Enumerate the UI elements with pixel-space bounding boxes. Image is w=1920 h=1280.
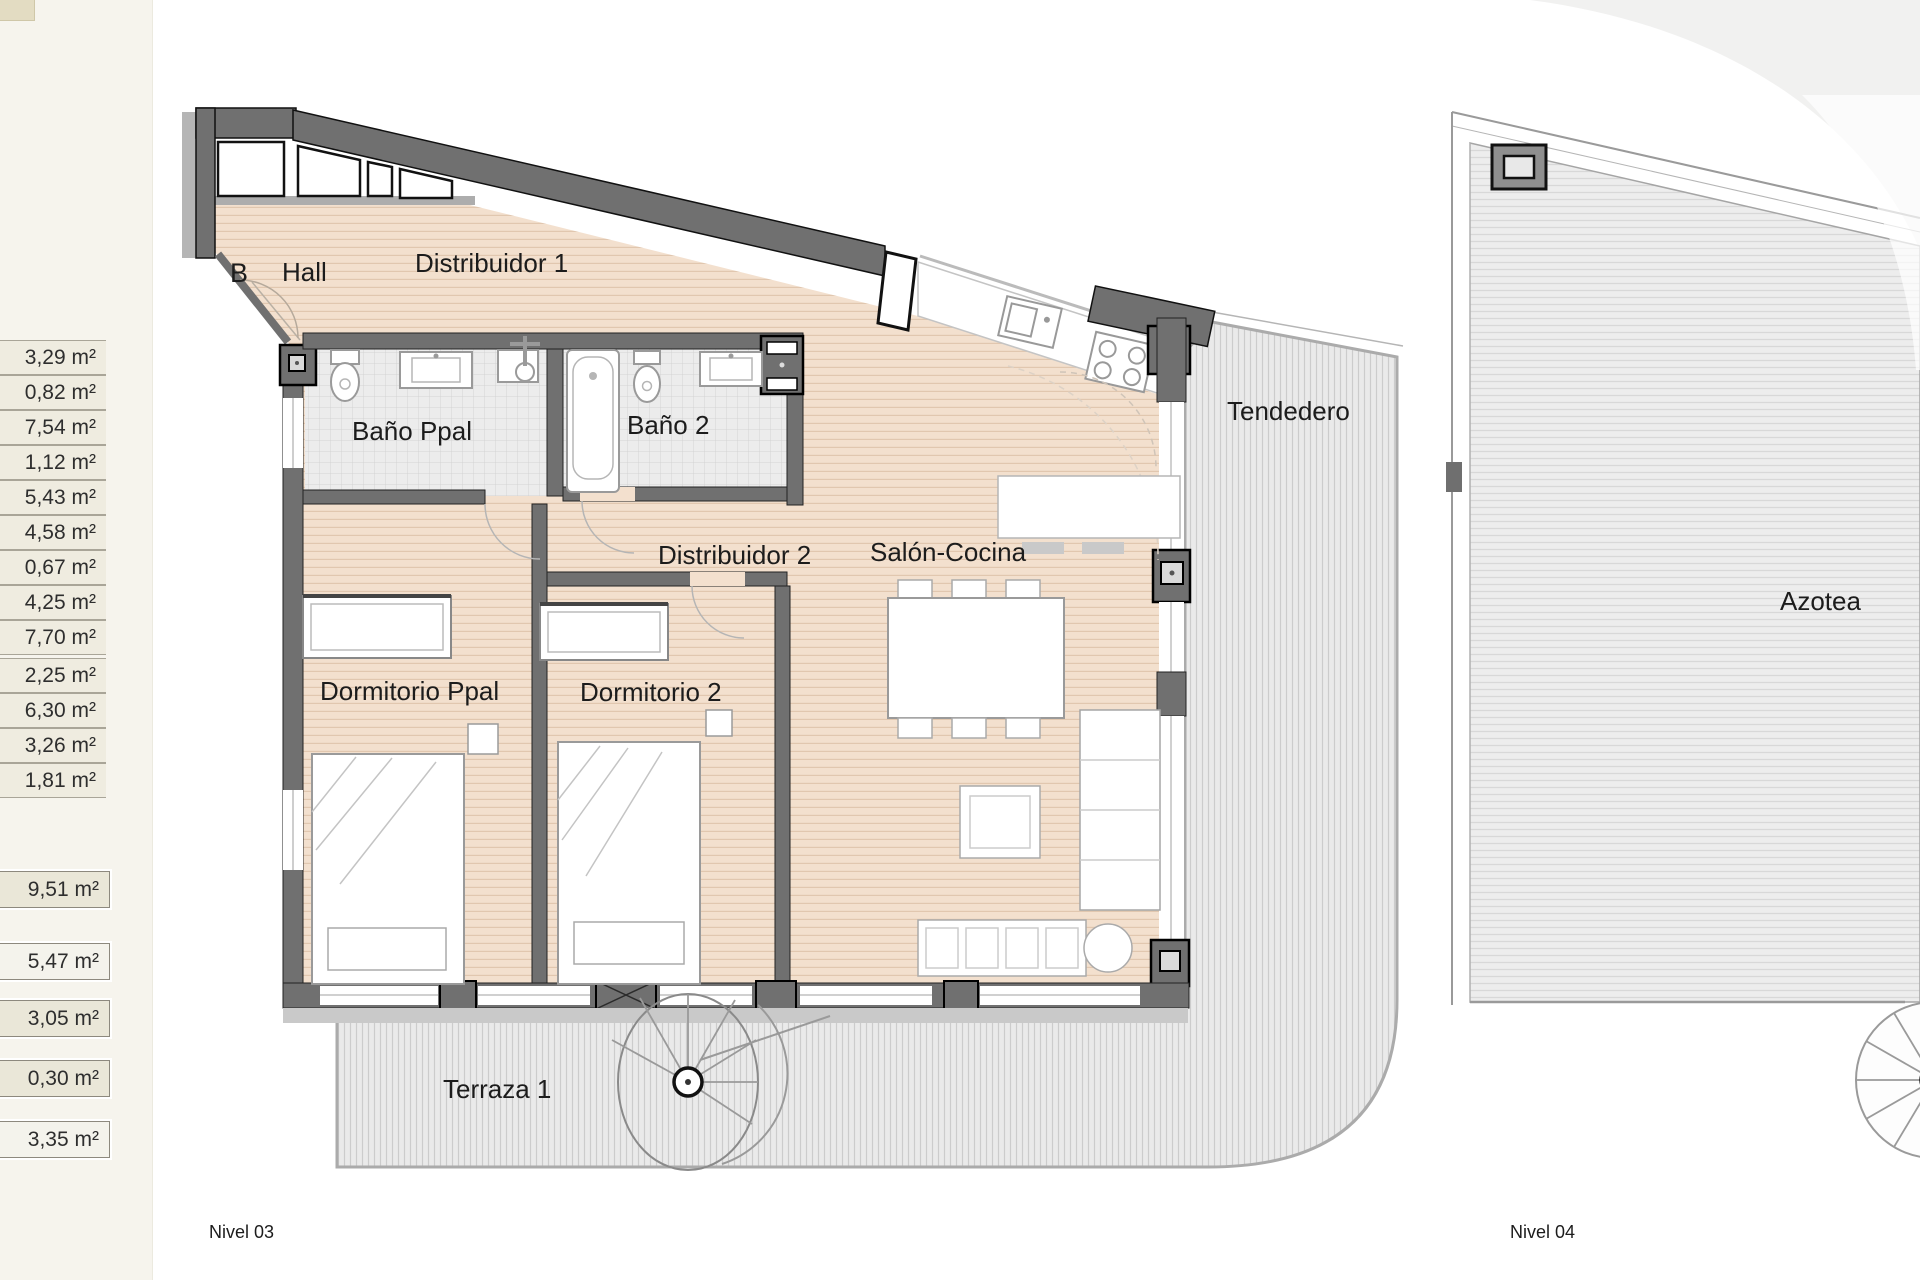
area-value-row: 3,26 m² — [0, 728, 106, 763]
area-value-row: 1,12 m² — [0, 445, 106, 480]
wall — [532, 504, 547, 984]
wall — [196, 108, 215, 258]
wall — [547, 349, 563, 496]
floorplan-sheet: B Hall Distribuidor 1 Baño Ppal Baño 2 D… — [0, 0, 1920, 1280]
area-value-row: 6,30 m² — [0, 693, 106, 728]
area-value-row: 5,43 m² — [0, 480, 106, 515]
room-label-dormitorio2: Dormitorio 2 — [580, 677, 722, 707]
column — [944, 981, 978, 1009]
area-value-row: 1,81 m² — [0, 763, 106, 798]
sill-band — [283, 1008, 1188, 1023]
area-total-box: 5,47 m² — [0, 943, 110, 980]
toilet-icon — [634, 351, 660, 402]
armchair — [960, 786, 1040, 858]
area-total-box: 0,30 m² — [0, 1060, 110, 1097]
toilet-icon — [331, 350, 359, 401]
room-label-tendedero: Tendedero — [1227, 396, 1350, 426]
wall — [775, 586, 790, 984]
unit-letter-label: B — [230, 258, 248, 288]
sink-icon — [400, 352, 472, 388]
plan-nivel-03: B Hall Distribuidor 1 Baño Ppal Baño 2 D… — [182, 108, 1403, 1242]
stool — [1022, 542, 1064, 554]
room-label-distribuidor1: Distribuidor 1 — [415, 248, 568, 278]
plan-caption-nivel04: Nivel 04 — [1510, 1222, 1575, 1242]
wardrobe — [303, 596, 451, 658]
tv-bench — [918, 920, 1086, 976]
dining-table — [888, 580, 1064, 738]
room-label-salon-cocina: Salón-Cocina — [870, 537, 1027, 567]
area-value-row: 2,25 m² — [0, 658, 106, 693]
nightstand — [468, 724, 498, 754]
clerestory-window — [368, 162, 392, 196]
wall — [547, 572, 787, 586]
azotea-hatch — [1470, 143, 1920, 1002]
area-value-row: 0,67 m² — [0, 550, 106, 585]
plan-caption-nivel03: Nivel 03 — [209, 1222, 274, 1242]
room-label-dormitorio-ppal: Dormitorio Ppal — [320, 676, 499, 706]
area-value-row: 4,58 m² — [0, 515, 106, 550]
sink-icon — [700, 352, 762, 386]
wall — [303, 333, 803, 349]
area-total-box: 9,51 m² — [0, 871, 110, 908]
sloped-window — [878, 252, 916, 330]
clerestory-window — [218, 142, 284, 196]
room-label-hall: Hall — [282, 257, 327, 287]
door-opening — [690, 572, 745, 586]
room-label-terraza1: Terraza 1 — [443, 1074, 551, 1104]
area-value-row: 4,25 m² — [0, 585, 106, 620]
coffee-table — [1084, 924, 1132, 972]
room-label-bano-ppal: Baño Ppal — [352, 416, 472, 446]
room-label-bano2: Baño 2 — [627, 410, 709, 440]
floorplan-drawing: B Hall Distribuidor 1 Baño Ppal Baño 2 D… — [0, 0, 1920, 1280]
area-total-box: 3,35 m² — [0, 1121, 110, 1158]
wall — [303, 490, 485, 504]
area-total-box: 3,05 m² — [0, 1000, 110, 1037]
kitchen-island — [998, 476, 1180, 538]
bathtub-icon — [567, 350, 619, 492]
bed — [312, 754, 464, 984]
spiral-stair — [1856, 1002, 1920, 1158]
wall — [1157, 672, 1186, 716]
area-value-row: 7,70 m² — [0, 620, 106, 655]
room-label-distribuidor2: Distribuidor 2 — [658, 540, 811, 570]
area-value-row: 7,54 m² — [0, 410, 106, 445]
column — [440, 981, 476, 1009]
stool — [1082, 542, 1124, 554]
wall-right — [1157, 318, 1186, 402]
wall-tick — [1446, 462, 1462, 492]
skylight — [1492, 145, 1546, 189]
area-value-row: 3,29 m² — [0, 340, 106, 375]
column — [756, 981, 796, 1009]
wardrobe — [540, 604, 668, 660]
nightstand — [706, 710, 732, 736]
sofa — [1080, 710, 1160, 910]
area-value-row: 0,82 m² — [0, 375, 106, 410]
bed — [558, 742, 700, 984]
room-label-azotea: Azotea — [1780, 586, 1861, 616]
plan-nivel-04: Azotea Nivel 04 — [1446, 95, 1920, 1242]
